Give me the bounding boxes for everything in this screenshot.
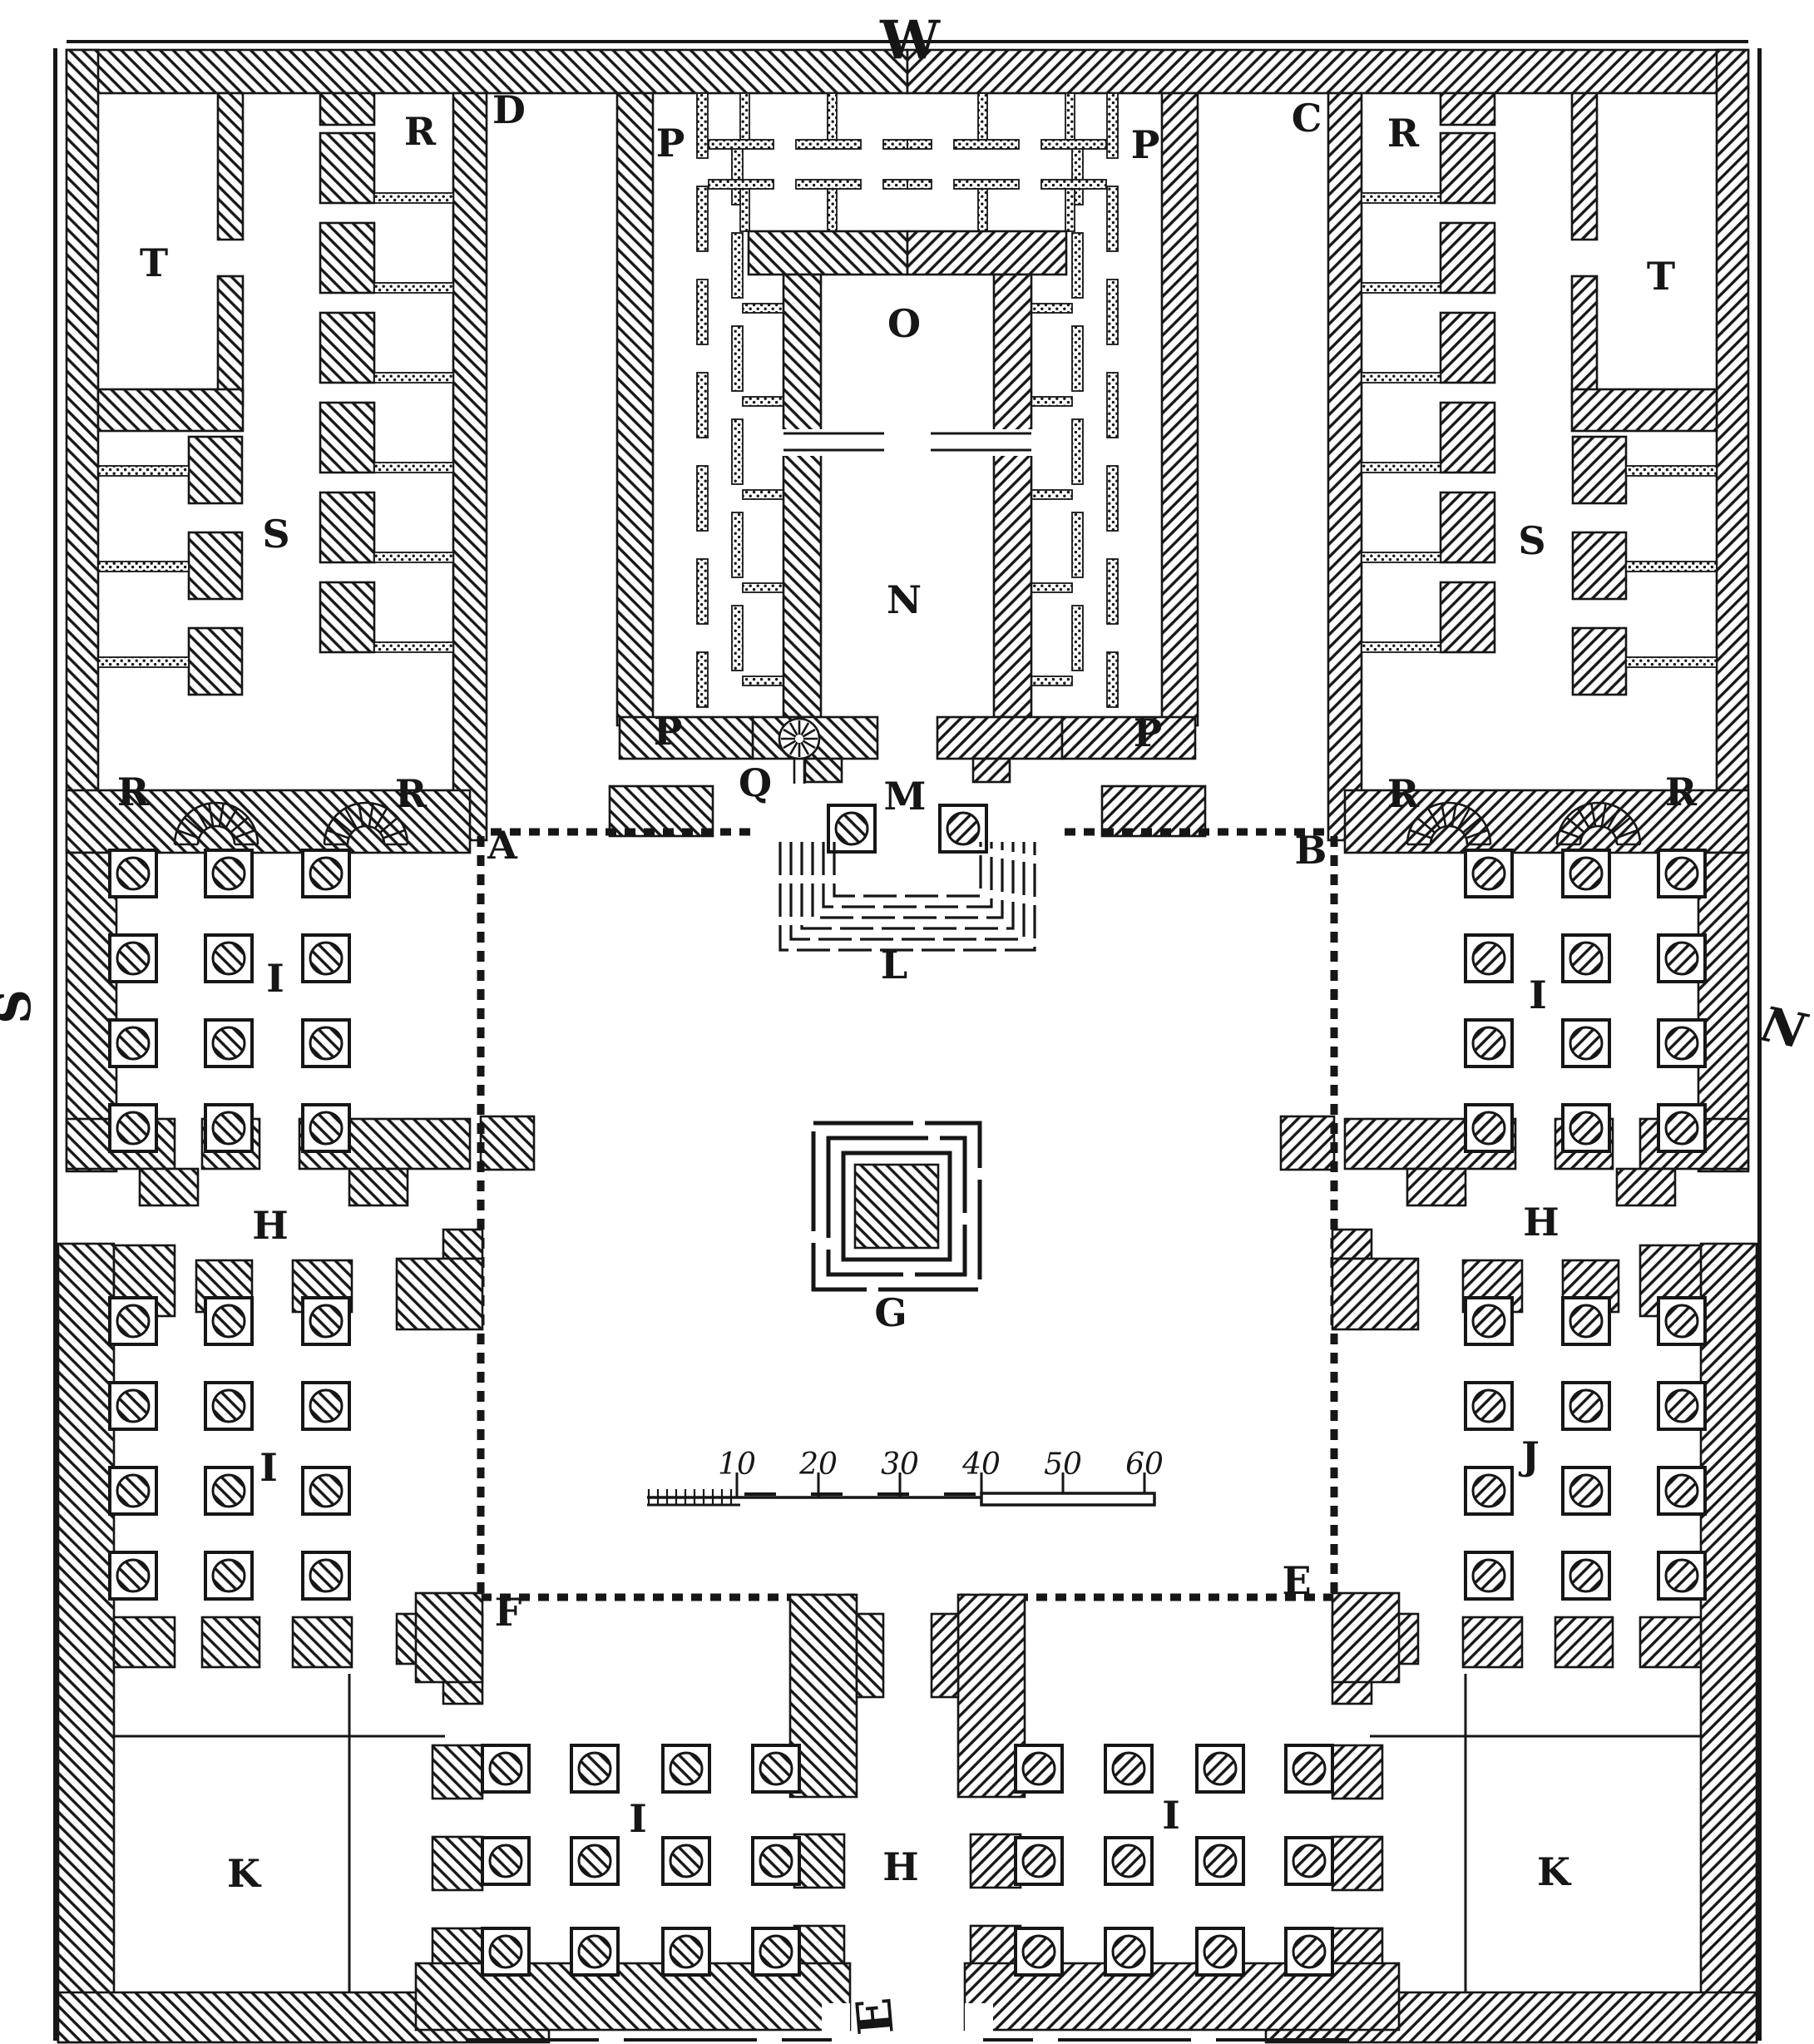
label-f: F [495, 1590, 522, 1635]
label-c: C [1292, 96, 1322, 141]
label-p: P [1131, 122, 1160, 167]
compass-south: S [0, 989, 42, 1024]
label-p: P [654, 709, 683, 754]
label-b: B [1295, 828, 1327, 873]
label-h: H [882, 1844, 918, 1889]
label-o: O [887, 301, 921, 346]
label-i: I [259, 1445, 278, 1490]
label-t: T [1647, 254, 1675, 299]
label-r: R [395, 771, 428, 816]
label-m: M [884, 774, 927, 819]
scale-tick-60: 60 [1125, 1448, 1164, 1482]
label-i: I [1162, 1793, 1180, 1838]
label-p: P [656, 121, 685, 166]
label-k: K [1537, 1849, 1572, 1894]
label-k: K [227, 1851, 262, 1896]
label-s: S [262, 512, 289, 557]
label-q: Q [739, 760, 772, 805]
label-a: A [487, 823, 518, 868]
label-n: N [887, 577, 922, 622]
compass-east: E [845, 1996, 905, 2037]
label-l: L [881, 943, 907, 987]
temple-complex-plan: 10 20 30 40 50 60 W S N E D C R R T T S … [0, 0, 1814, 2044]
scale-tick-50: 50 [1044, 1448, 1082, 1482]
label-r: R [1387, 771, 1420, 816]
scale-tick-10: 10 [718, 1448, 756, 1482]
label-d: D [492, 87, 526, 132]
scale-tick-30: 30 [881, 1448, 919, 1482]
label-r: R [404, 109, 437, 154]
label-g: G [874, 1290, 907, 1335]
label-h: H [1523, 1200, 1559, 1245]
label-r: R [1387, 111, 1420, 156]
label-t: T [140, 240, 168, 285]
label-j: J [1518, 1433, 1540, 1478]
label-r: R [117, 770, 150, 814]
label-r: R [1665, 770, 1698, 814]
scale-tick-20: 20 [798, 1448, 838, 1482]
label-i: I [1529, 973, 1547, 1017]
label-h: H [252, 1203, 288, 1248]
label-e: E [1282, 1558, 1311, 1603]
label-p: P [1134, 710, 1163, 755]
scale-tick-40: 40 [961, 1448, 1001, 1482]
label-i: I [629, 1796, 647, 1841]
plan-page: 10 20 30 40 50 60 W S N E D C R R T T S … [0, 0, 1814, 2044]
label-i: I [266, 956, 284, 1001]
label-s: S [1518, 518, 1545, 563]
compass-west: W [879, 9, 941, 72]
